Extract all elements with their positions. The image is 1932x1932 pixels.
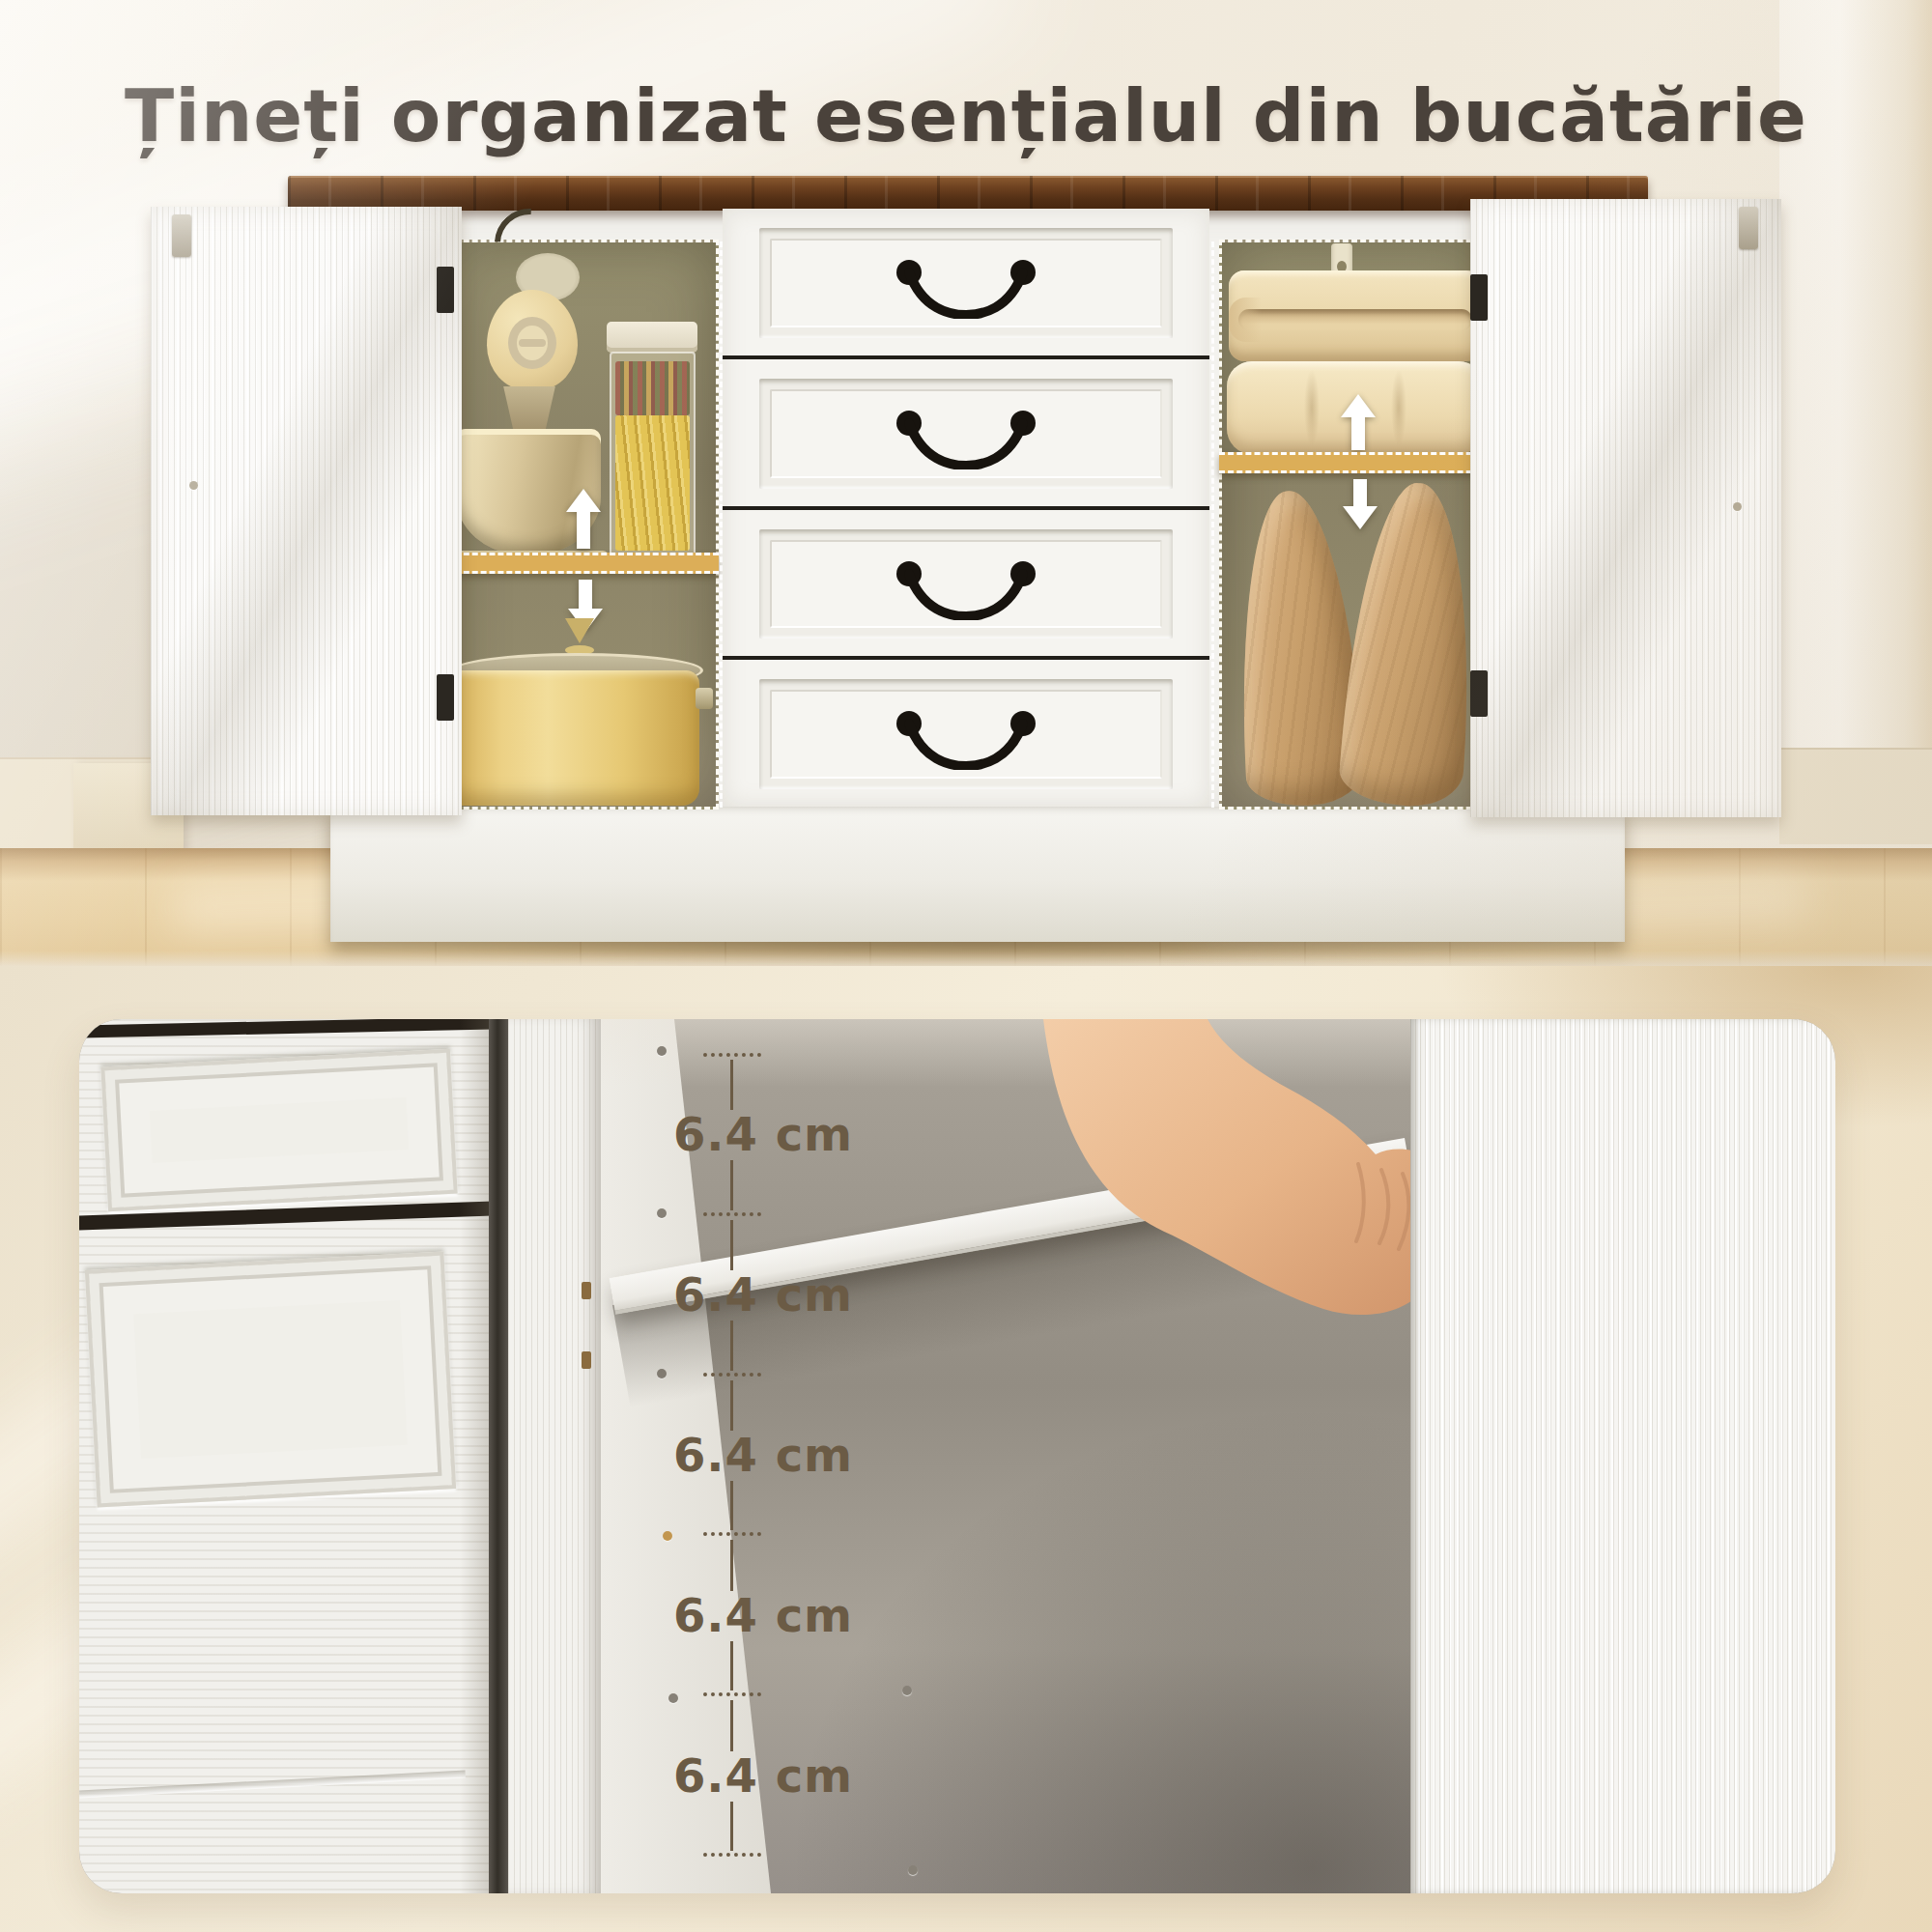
hand [929,1019,1451,1444]
measure-line [730,1160,733,1210]
dashed-outline [1211,241,1214,808]
measure-tick [703,1373,761,1377]
measurement-label: 6.4 cm [659,1751,867,1800]
left-door [151,207,462,815]
drawer-molding [100,1049,457,1212]
down-arrow-icon [1343,479,1378,529]
drawer-stack [723,209,1209,807]
shelf-pin-hole [902,1686,912,1695]
measure-line [730,1060,733,1110]
drawer-2 [723,355,1209,506]
measure-line [730,1321,733,1371]
measure-tick [703,1532,761,1536]
cabinet-base-plinth [330,805,1625,942]
measure-tick [703,1692,761,1696]
jar-pasta [615,415,690,551]
door-catch [1739,207,1758,249]
measure-line [730,1481,733,1530]
measure-line [730,1700,733,1751]
page-title: Țineți organizat esențialul din bucătări… [0,73,1932,158]
pot-handle [696,688,713,709]
measure-tick [703,1212,761,1216]
shelf-pin-hole [668,1693,678,1703]
adjustable-shelf-highlight [1219,452,1490,473]
drawer-molding [85,1251,456,1507]
measurement-label: 6.4 cm [659,1110,867,1158]
measure-line [730,1802,733,1851]
door-catch [172,214,191,257]
measure-line [730,1641,733,1690]
pasta-jar [610,352,696,558]
jar-speckles [615,361,690,415]
cabinet-stile [508,1019,601,1893]
hero-section: Țineți organizat esențialul din bucătări… [0,0,1932,966]
measurement-label: 6.4 cm [659,1431,867,1479]
drawer-handle-icon [884,408,1048,469]
dashed-outline [720,241,723,808]
screw [189,481,198,490]
hinge-pin [582,1282,591,1299]
pasta-jar-lid [607,322,697,353]
shelf-pin-hole [908,1865,918,1875]
screw [1733,502,1742,511]
door-hinge [1470,274,1488,321]
door-hinge [1470,670,1488,717]
shelf-adjustment-photo: 6.4 cm 6.4 cm 6.4 cm 6.4 cm 6.4 cm [79,1019,1835,1893]
shelf-pin-hole [657,1046,667,1056]
measurement-label: 6.4 cm [659,1591,867,1639]
adjustable-shelf-highlight [446,553,719,574]
measure-tick [703,1853,761,1857]
wood-countertop [288,176,1648,211]
drawer-1 [723,209,1209,355]
drawer-4 [723,656,1209,807]
measure-line [730,1380,733,1431]
measure-line [730,1220,733,1270]
detail-section: 6.4 cm 6.4 cm 6.4 cm 6.4 cm 6.4 cm [0,966,1932,1932]
up-arrow-icon [566,489,601,549]
hinge-pin [582,1351,591,1369]
stand-mixer-vent [508,317,556,369]
shelf-pin-hole [657,1208,667,1218]
drawer-gap [79,1019,504,1038]
drawer-handle-icon [884,558,1048,620]
measurement-label: 6.4 cm [659,1270,867,1319]
up-arrow-icon [1341,394,1376,450]
drawer-3 [723,506,1209,657]
folded-blanket [1229,270,1482,361]
door-panel-closeup [1410,1019,1835,1893]
door-hinge [437,674,454,721]
drawer-front-closeup [79,1019,489,1893]
storage-pot [446,670,699,806]
measure-line [730,1540,733,1591]
shelf-pin [663,1531,672,1541]
drawer-handle-icon [884,708,1048,770]
cabinet-gap [489,1019,508,1893]
drawer-molding-line [79,1771,466,1799]
door-hinge [437,267,454,313]
right-baseboard [1779,748,1932,844]
product-image: Țineți organizat esențialul din bucătări… [0,0,1932,1932]
measure-tick [703,1053,761,1057]
drawer-handle-icon [884,257,1048,319]
